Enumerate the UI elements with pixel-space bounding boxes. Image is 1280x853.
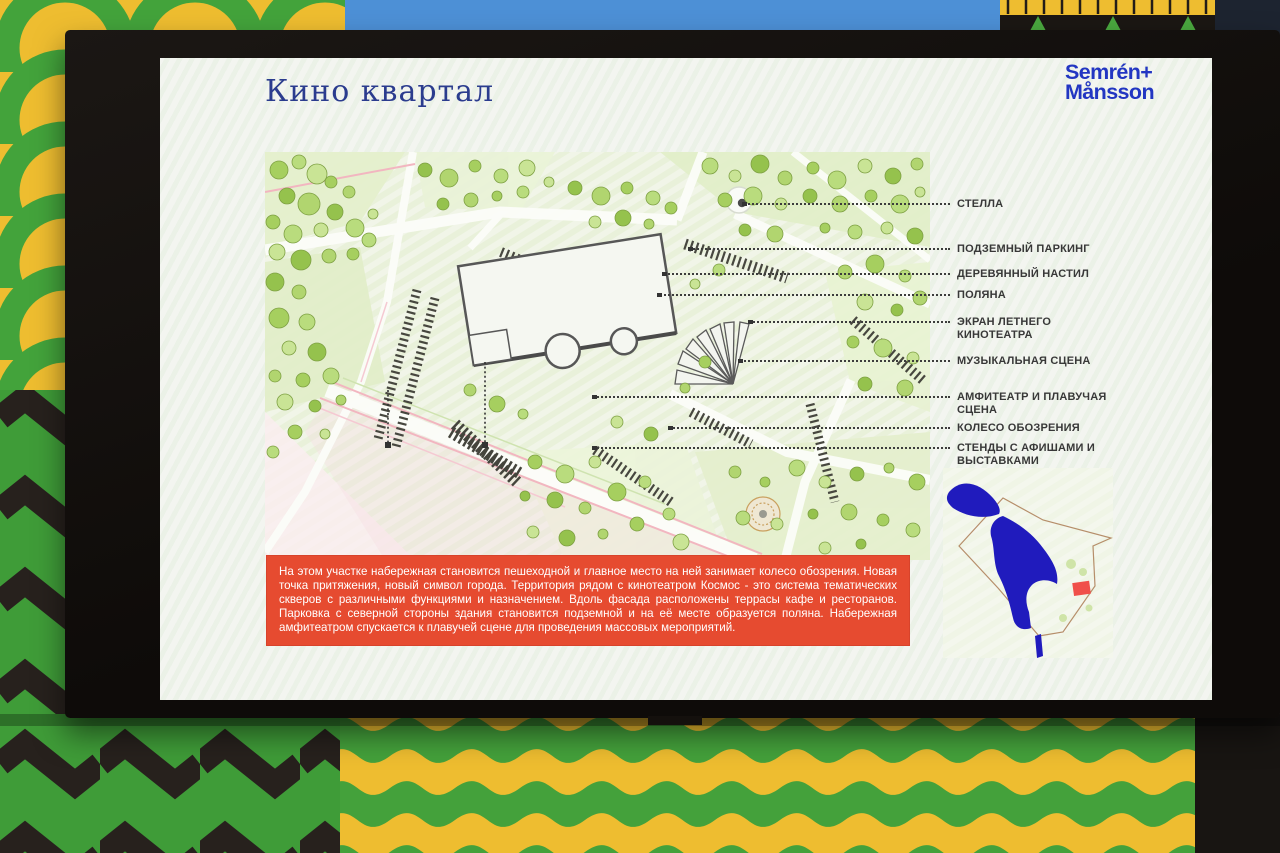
- chevron-pattern: [0, 714, 340, 853]
- plan-label: СТЕЛЛА: [957, 198, 1129, 211]
- leader-line: [659, 294, 950, 296]
- leader-line: [690, 248, 950, 250]
- plan-label: ДЕРЕВЯННЫЙ НАСТИЛ: [957, 268, 1129, 281]
- leader-line: [664, 273, 950, 275]
- leader-line: [594, 447, 950, 449]
- leader-line: [740, 360, 950, 362]
- ruler-strip: [1000, 0, 1215, 15]
- plan-label: ПОДЗЕМНЫЙ ПАРКИНГ: [957, 243, 1129, 256]
- photo-scene: Кино квартал Semrén+ Månsson: [0, 0, 1280, 853]
- plan-label: КОЛЕСО ОБОЗРЕНИЯ: [957, 422, 1129, 435]
- wave-pattern: [340, 714, 1195, 853]
- leader-line: [744, 203, 950, 205]
- plan-label: СТЕНДЫ С АФИШАМИ И ВЫСТАВКАМИ: [957, 442, 1129, 468]
- plan-label: ЭКРАН ЛЕТНЕГО КИНОТЕАТРА: [957, 316, 1129, 342]
- plan-label: АМФИТЕАТР И ПЛАВУЧАЯ СЦЕНА: [957, 391, 1129, 417]
- tv-screen: Кино квартал Semrén+ Månsson: [160, 58, 1212, 700]
- location-minimap: [943, 468, 1113, 658]
- plan-label: МУЗЫКАЛЬНАЯ СЦЕНА: [957, 355, 1129, 368]
- scallop-pattern: [0, 0, 70, 390]
- description-box: На этом участке набережная становится пе…: [267, 556, 909, 645]
- leader-line: [750, 321, 950, 323]
- tv-mount: [648, 716, 702, 725]
- dark-column: [1195, 714, 1280, 853]
- plan-label: ПОЛЯНА: [957, 289, 1129, 302]
- leader-line: [594, 396, 950, 398]
- leader-line: [670, 427, 950, 429]
- mural-bottom: [0, 714, 1280, 853]
- minimap-site-marker: [1072, 581, 1091, 596]
- tv-frame: Кино квартал Semrén+ Månsson: [65, 30, 1280, 718]
- slide: Кино квартал Semrén+ Månsson: [160, 58, 1212, 700]
